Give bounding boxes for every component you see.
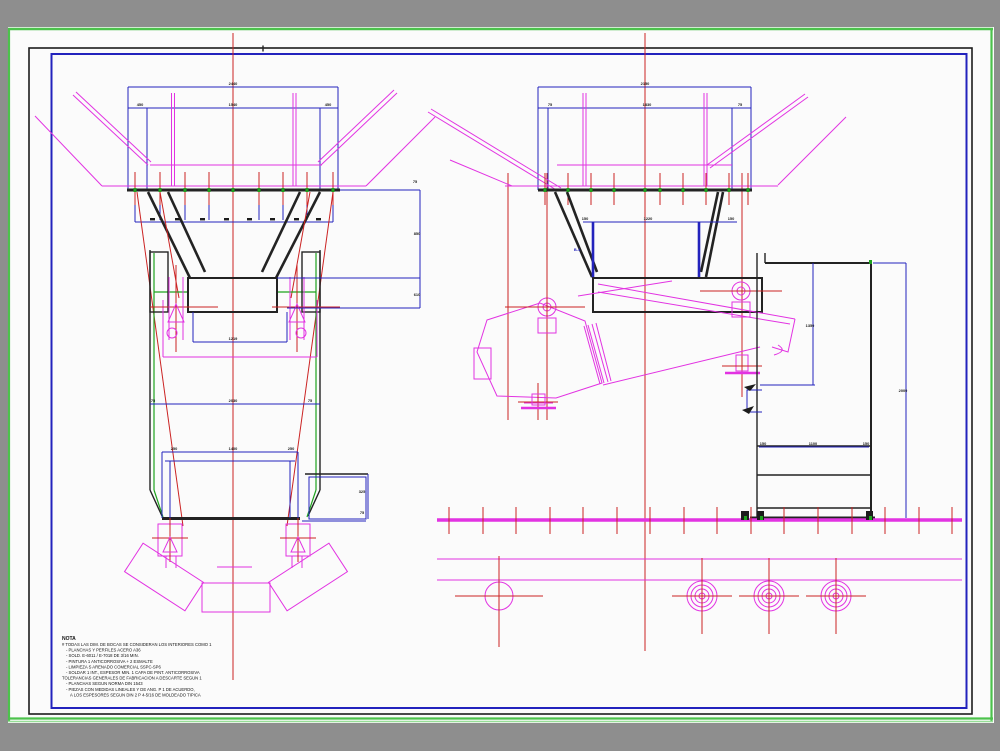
dim-label: 1220 bbox=[644, 216, 653, 221]
dim-label: 1400 bbox=[229, 446, 238, 451]
dim-label: 2030 bbox=[229, 398, 238, 403]
dim-label: 1219 bbox=[229, 336, 238, 341]
dim-label: 325 bbox=[359, 489, 366, 494]
dim-label: 150 bbox=[863, 441, 870, 446]
cad-viewer-canvas[interactable]: 2440 450 1540 450 bbox=[0, 0, 1000, 751]
note-line: - PLANCHAS SEGUN NORMA DIN 1543 bbox=[66, 681, 143, 686]
note-line: - LIMPIEZA S ARENADO COMERCIAL SSPC-SP6 bbox=[66, 664, 161, 669]
note-line: - SOLDAR 1 INT., ESPESOR MIN. 1 CAPA DE … bbox=[66, 670, 200, 675]
dim-label: 2000 bbox=[899, 388, 908, 393]
dim-label: 1100 bbox=[809, 441, 817, 446]
note-line: - PLANCHAS Y PERFILES ACERO A36 bbox=[66, 648, 141, 653]
dim-label: 1830 bbox=[643, 102, 652, 107]
dim-label: 850 bbox=[414, 231, 421, 236]
dim-label: 150 bbox=[582, 216, 589, 221]
dim-label: 1350 bbox=[806, 323, 815, 328]
dim-label: B-4 bbox=[574, 247, 581, 252]
drawing-viewport: 2440 450 1540 450 bbox=[0, 0, 1000, 751]
sheet-paper bbox=[8, 27, 994, 723]
note-line: - PINTURA 1 ANTICORROSIVA + 2 ESMALTE bbox=[66, 659, 153, 664]
dim-label: 1540 bbox=[229, 102, 238, 107]
dim-label: 610 bbox=[414, 292, 421, 297]
note-line: A LOS ESPESORES SEGUN DIN 2 P 4-5/16 DE … bbox=[70, 692, 201, 697]
dim-label: 2440 bbox=[229, 81, 238, 86]
dim-label: 450 bbox=[137, 102, 144, 107]
dim-label: 2150 bbox=[641, 81, 650, 86]
dim-label: 150 bbox=[760, 441, 767, 446]
note-line: - PIEZAS CON MEDIDAS LINEALES Y DE ANG. … bbox=[66, 687, 195, 692]
note-line: # TODAS LAS DIM. DE BOCAS SE CONSIDERAN … bbox=[62, 642, 212, 647]
note-line: TOLERANCIAS GENERALES DE FABRICACION A D… bbox=[62, 676, 202, 681]
dim-label: 250 bbox=[171, 446, 178, 451]
note-line: - SOLD. E-6011 / E-7018 DE 3/16 MIN. bbox=[66, 653, 139, 658]
dim-label: 150 bbox=[728, 216, 735, 221]
dim-label: 450 bbox=[325, 102, 332, 107]
dim-label: 250 bbox=[288, 446, 295, 451]
